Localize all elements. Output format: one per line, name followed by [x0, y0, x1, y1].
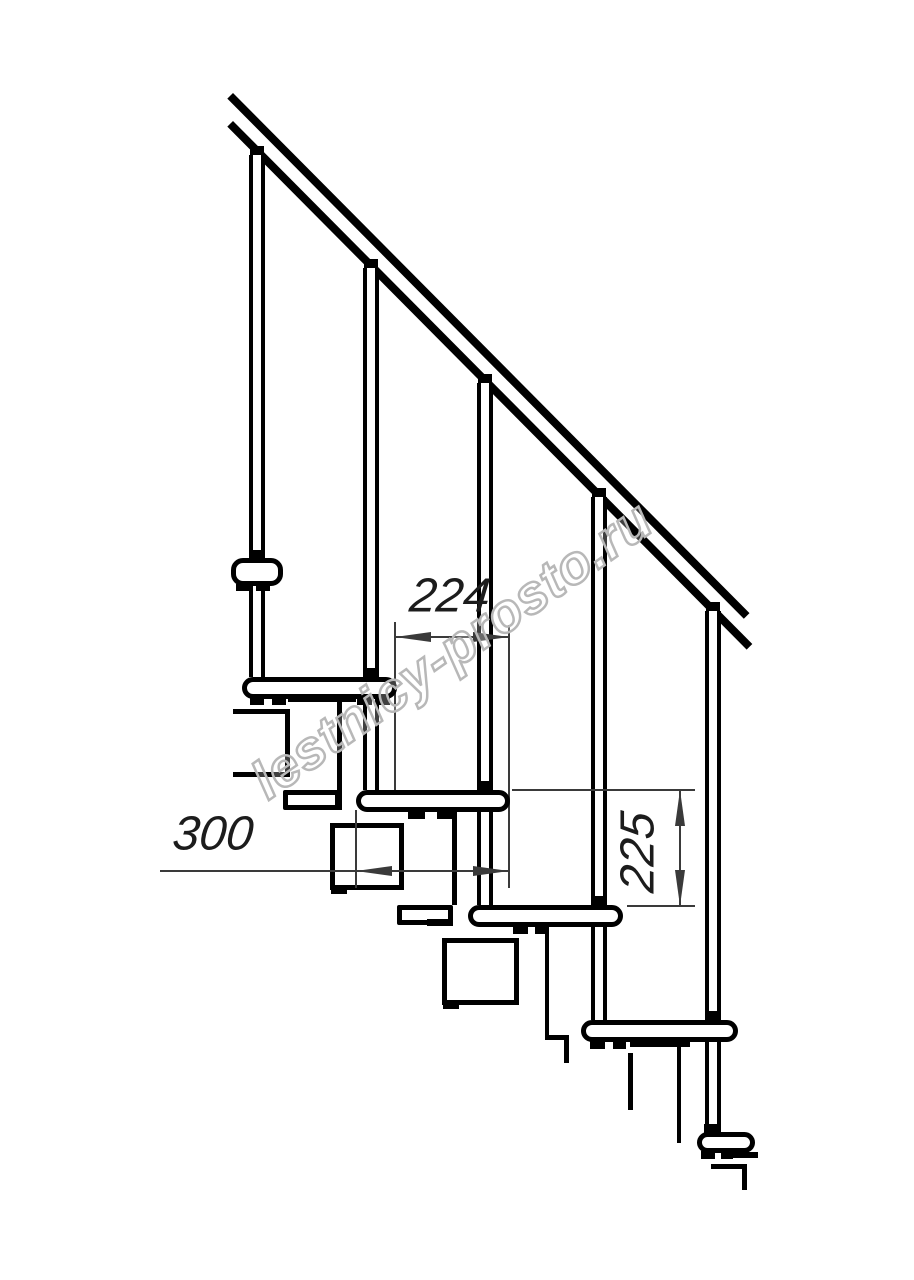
connector-mark — [613, 1041, 626, 1049]
dimension-arrow — [675, 790, 685, 826]
baluster-cap — [250, 146, 264, 155]
connector-mark — [590, 1041, 605, 1049]
connector-mark — [437, 811, 454, 819]
module-box-3 — [442, 938, 519, 1005]
connector-mark — [443, 1003, 459, 1009]
connector-mark — [272, 698, 286, 705]
connector-mark — [704, 1124, 720, 1133]
dimension-arrow — [356, 866, 392, 876]
extension-line — [512, 789, 695, 791]
dimension-label-rise: 225 — [611, 809, 666, 895]
dimension-line-tread-depth — [160, 870, 509, 872]
connector-mark — [513, 926, 528, 934]
connector-mark — [236, 584, 250, 591]
extension-line — [508, 625, 510, 888]
drawing-canvas: 224 300 225 lestnicy-prosto.ru — [0, 0, 914, 1280]
connector-mark — [701, 1151, 715, 1159]
module-box-2 — [330, 823, 404, 890]
dimension-arrow — [675, 870, 685, 906]
baluster-cap — [592, 488, 606, 497]
baluster-1 — [249, 155, 265, 677]
module-hanger-4 — [677, 1042, 681, 1143]
baluster-cap — [706, 602, 720, 611]
tread-3 — [468, 905, 623, 927]
connector-mark — [591, 896, 607, 905]
tread-5 — [697, 1132, 755, 1153]
connector-mark — [427, 919, 453, 926]
connector-mark — [477, 781, 493, 790]
connector-mark — [249, 550, 265, 559]
baluster-cap — [478, 374, 492, 383]
module-box-4-edge — [628, 1053, 633, 1110]
tread-4 — [581, 1020, 738, 1042]
connector-mark — [256, 584, 270, 591]
connector-mark — [630, 1041, 690, 1047]
connector-mark — [535, 926, 548, 934]
dimension-arrow — [473, 866, 509, 876]
connector-mark — [331, 888, 347, 894]
connector-mark — [705, 1011, 721, 1020]
dimension-label-tread-depth: 300 — [170, 807, 256, 862]
connector-mark — [250, 698, 264, 705]
tread-2 — [356, 790, 510, 812]
extension-line — [355, 810, 357, 888]
base-break-line — [742, 1164, 747, 1190]
connector-mark — [408, 811, 425, 819]
tread-0 — [231, 558, 283, 586]
connector-mark — [731, 1152, 758, 1158]
module-hanger-2 — [452, 812, 457, 905]
baluster-5 — [705, 611, 721, 1133]
module-hanger-3 — [545, 927, 549, 1037]
module-hanger-3-end — [564, 1035, 569, 1063]
baluster-cap — [364, 259, 378, 268]
